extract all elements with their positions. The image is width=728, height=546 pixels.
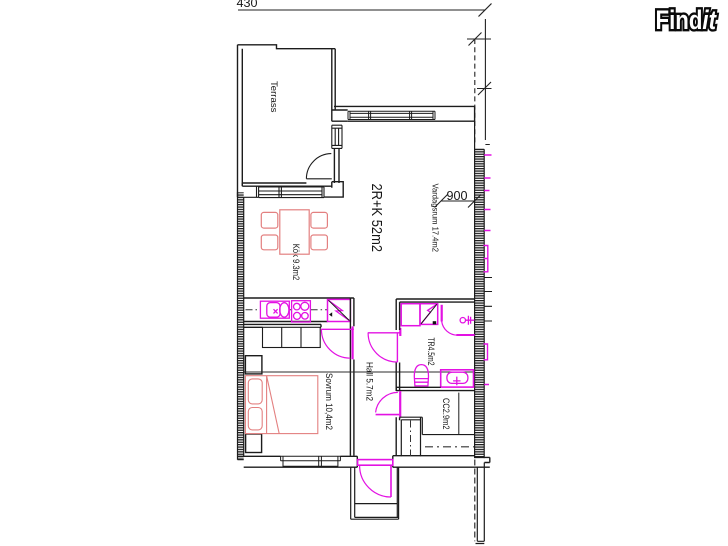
svg-text:Sovrum 10,4m2: Sovrum 10,4m2 [324, 373, 334, 430]
svg-text:Vardagsrum 17.4m2: Vardagsrum 17.4m2 [431, 184, 441, 253]
svg-text:430: 430 [237, 0, 258, 10]
svg-text:Findit: Findit [656, 5, 717, 35]
svg-text:CC2.9m2: CC2.9m2 [441, 398, 451, 430]
svg-text:Hall 5.7m2: Hall 5.7m2 [364, 362, 374, 401]
svg-text:Kök 9.3m2: Kök 9.3m2 [291, 244, 301, 281]
svg-text:TR4.5m2: TR4.5m2 [426, 338, 436, 366]
svg-text:Terrass: Terrass [269, 81, 279, 113]
svg-text:2R+K 52m2: 2R+K 52m2 [368, 184, 384, 253]
